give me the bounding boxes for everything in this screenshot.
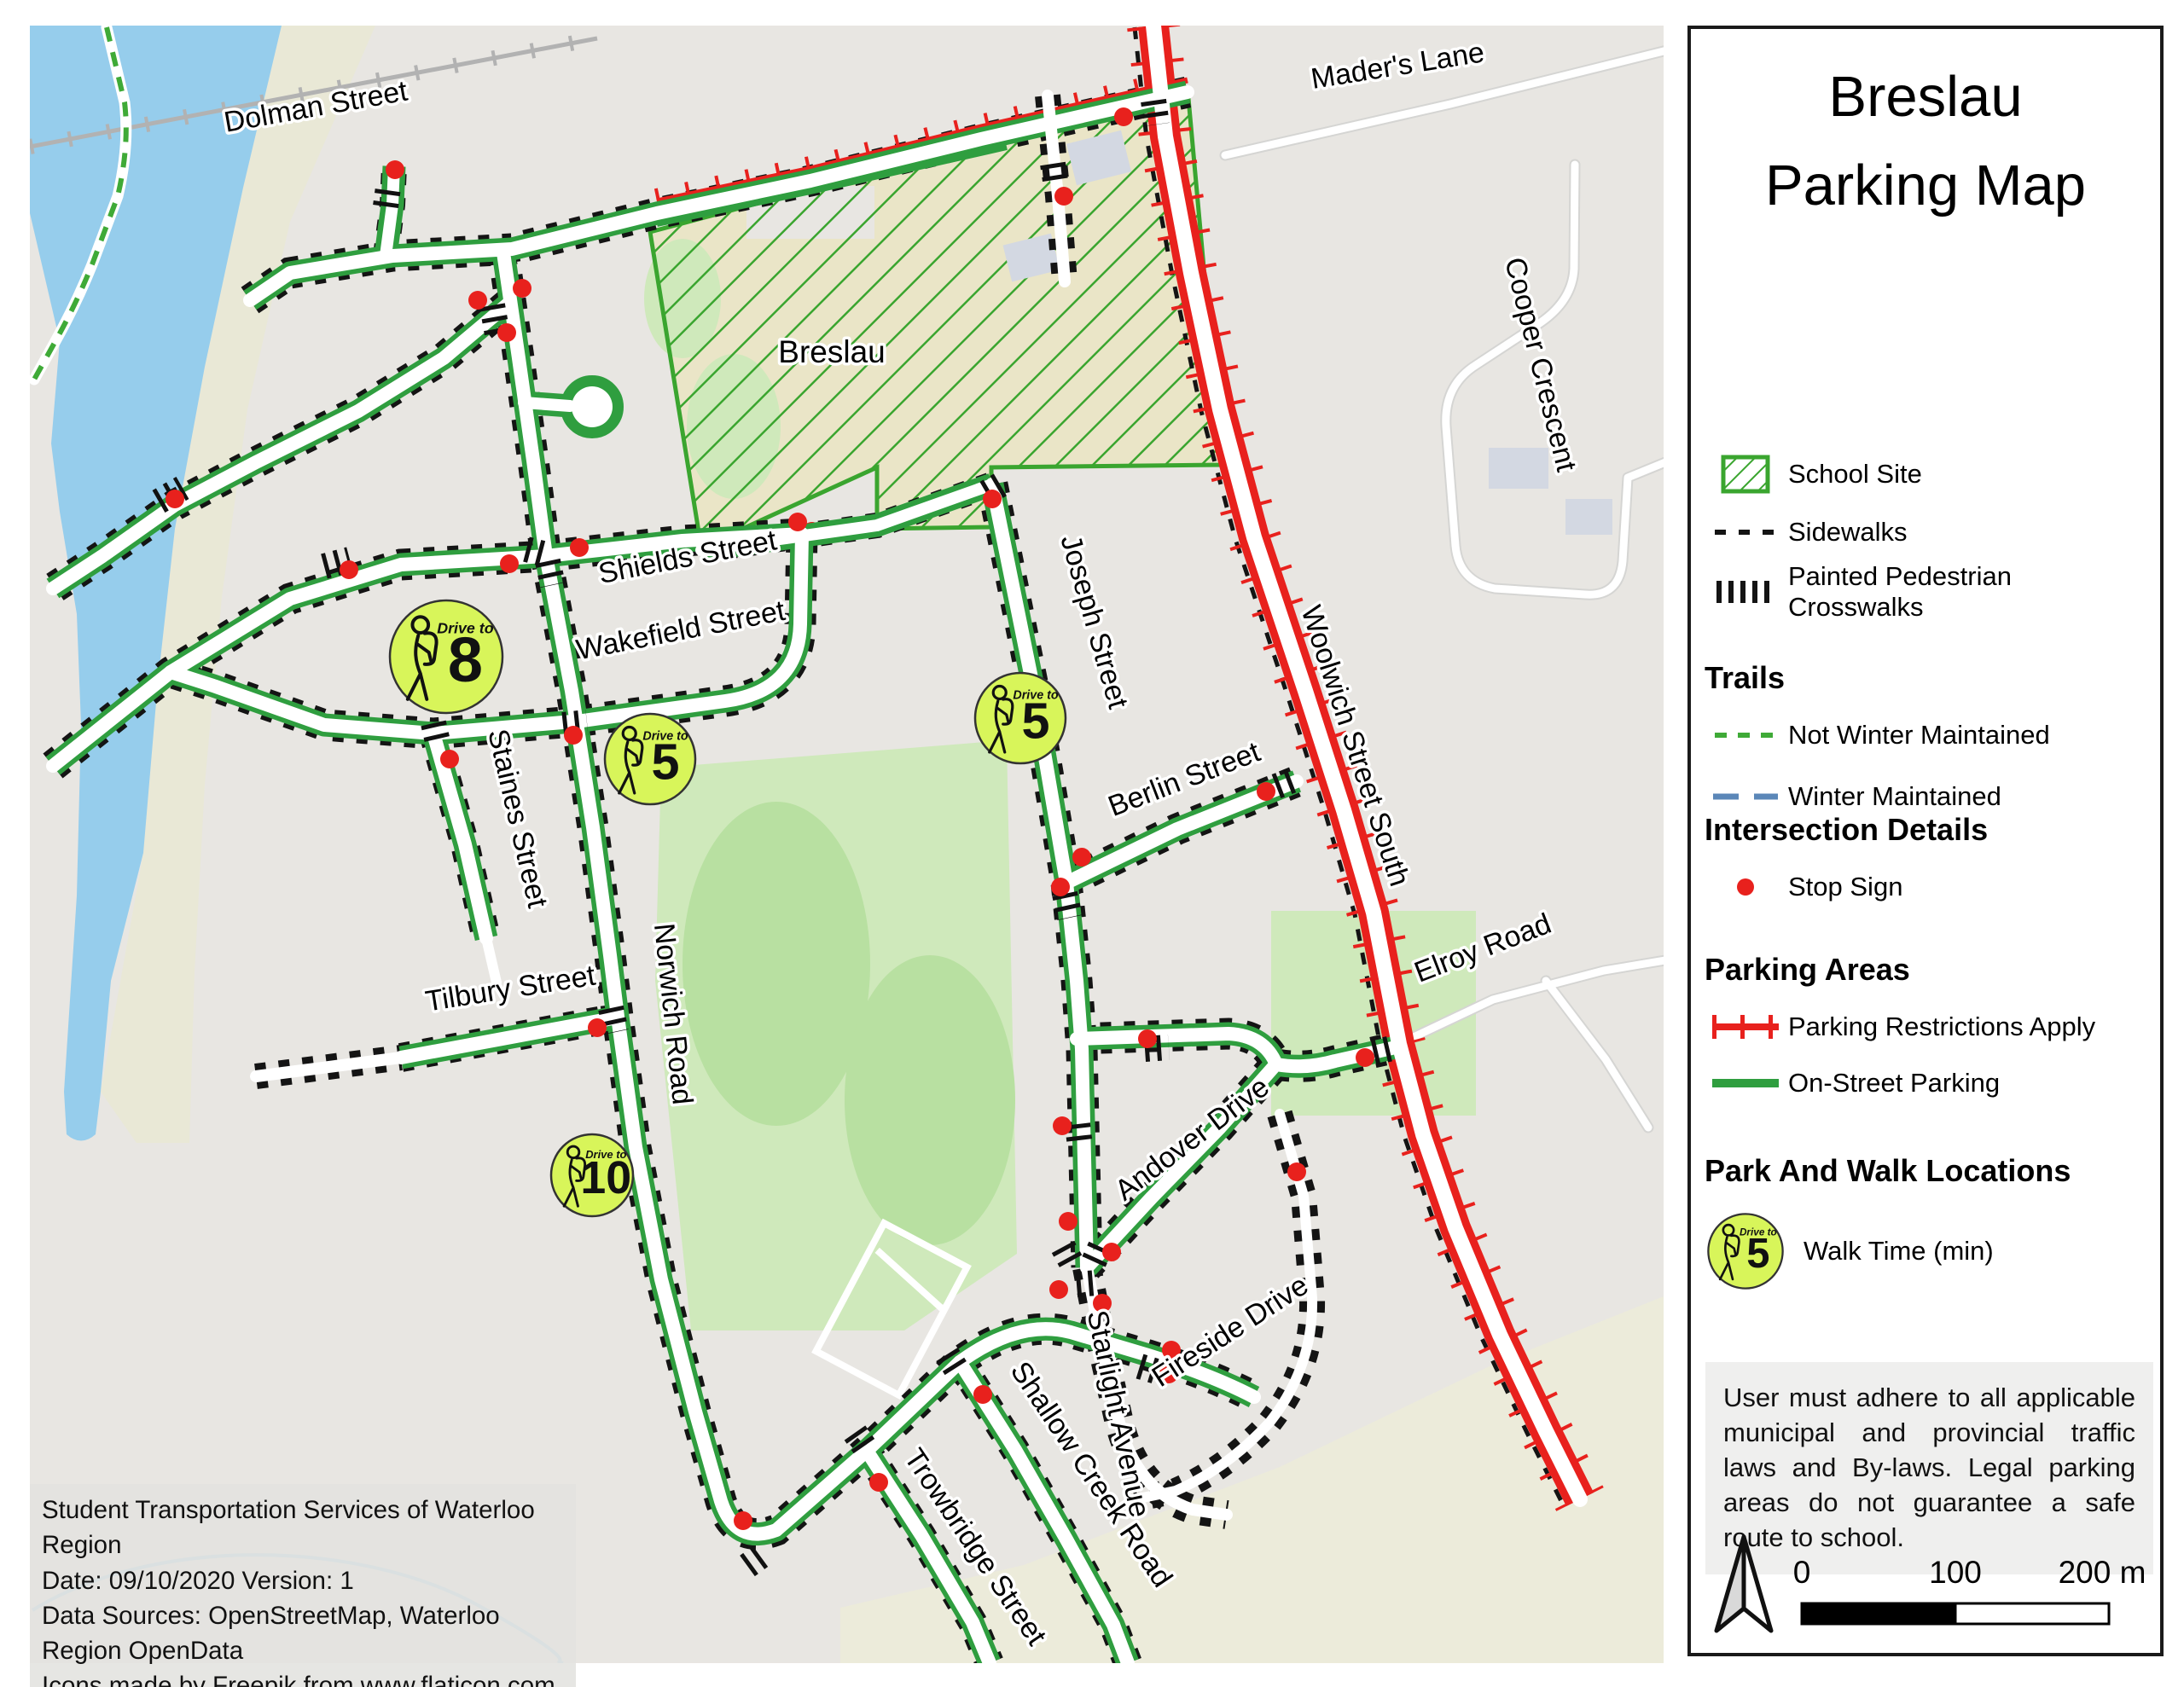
attribution-line: Data Sources: OpenStreetMap, Waterloo Re… [42, 1598, 564, 1669]
legend-label: School Site [1788, 459, 1922, 490]
legend-heading-park-walk: Park And Walk Locations [1705, 1153, 2071, 1189]
svg-text:0: 0 [1793, 1555, 1811, 1590]
legend-row-stop-sign: Stop Sign [1703, 863, 2146, 911]
legend-row-restrictions: Parking Restrictions Apply [1703, 1003, 2146, 1051]
legend-label: Walk Time (min) [1804, 1236, 1994, 1267]
stop-sign-swatch [1703, 874, 1788, 900]
svg-text:200 m: 200 m [2059, 1555, 2146, 1590]
north-arrow [1716, 1537, 1771, 1631]
on-street-swatch [1703, 1075, 1788, 1092]
legend-row-school-site: School Site [1703, 450, 2146, 498]
walk-icon-value: 10 [580, 1152, 631, 1203]
legend-panel: Breslau Parking Map School Site Sidewalk… [1687, 26, 2164, 1656]
school-site-swatch [1703, 455, 1788, 494]
street-label-breslau: Breslau [778, 334, 885, 369]
legend-label: Parking Restrictions Apply [1788, 1012, 2095, 1042]
legend-label: Winter Maintained [1788, 781, 2001, 812]
legend-heading-intersection: Intersection Details [1705, 812, 1988, 848]
map-title-line1: Breslau [1691, 53, 2160, 142]
not-winter-swatch [1703, 727, 1788, 744]
walk-icon-value: 5 [652, 733, 680, 790]
attribution-box: Student Transportation Services of Water… [30, 1484, 576, 1687]
legend-label: Stop Sign [1788, 872, 1902, 902]
breslau-parking-map-page: Dolman StreetMader's LaneCooper Crescent… [0, 0, 2184, 1687]
winter-swatch [1703, 788, 1788, 805]
legend-label: Not Winter Maintained [1788, 720, 2050, 751]
restrictions-swatch [1703, 1012, 1788, 1041]
park-and-walk-icon: Drive to5 [605, 714, 695, 804]
legend-row-walk-time: Drive to5 Walk Time (min) [1703, 1204, 2146, 1298]
legend-heading-trails: Trails [1705, 660, 1785, 696]
scale-bar: 0 100 200 m [1793, 1555, 2146, 1624]
legend-row-sidewalks: Sidewalks [1703, 508, 2146, 556]
park-blob-1 [682, 802, 870, 1126]
map-title: Breslau Parking Map [1691, 53, 2160, 230]
attribution-line: Date: 09/10/2020 Version: 1 [42, 1563, 564, 1598]
map-area: Dolman StreetMader's LaneCooper Crescent… [30, 26, 1670, 1663]
map-title-line2: Parking Map [1691, 142, 2160, 230]
svg-text:100: 100 [1929, 1555, 1982, 1590]
sidewalks-swatch [1703, 524, 1788, 541]
park-and-walk-icon: Drive to5 [1708, 1214, 1782, 1288]
park-blob-2 [845, 955, 1015, 1245]
park-and-walk-icon: Drive to5 [975, 673, 1066, 763]
crosswalks-swatch [1703, 579, 1788, 605]
legend-label: On-Street Parking [1788, 1068, 2000, 1099]
legend-row-crosswalks: Painted Pedestrian Crosswalks [1703, 568, 2146, 616]
park-and-walk-icon: Drive to8 [390, 600, 502, 713]
attribution-line: Student Transportation Services of Water… [42, 1493, 564, 1563]
legend-heading-parking: Parking Areas [1705, 952, 1910, 988]
legend-row-not-winter: Not Winter Maintained [1703, 711, 2146, 759]
walk-icon-value: 8 [448, 624, 483, 695]
legend-row-on-street: On-Street Parking [1703, 1059, 2146, 1107]
scale-and-north: 0 100 200 m [1708, 1530, 2152, 1649]
park-and-walk-icon: Drive to10 [551, 1134, 633, 1216]
walk-icon-value: 5 [1746, 1231, 1769, 1277]
attribution-line: Icons made by Freepik from www.flaticon.… [42, 1668, 564, 1687]
legend-label: Sidewalks [1788, 517, 1908, 548]
walk-icon-value: 5 [1022, 692, 1050, 749]
legend-label: Painted Pedestrian Crosswalks [1788, 561, 2146, 623]
walk-time-icon: Drive to5 [1703, 1204, 1788, 1298]
